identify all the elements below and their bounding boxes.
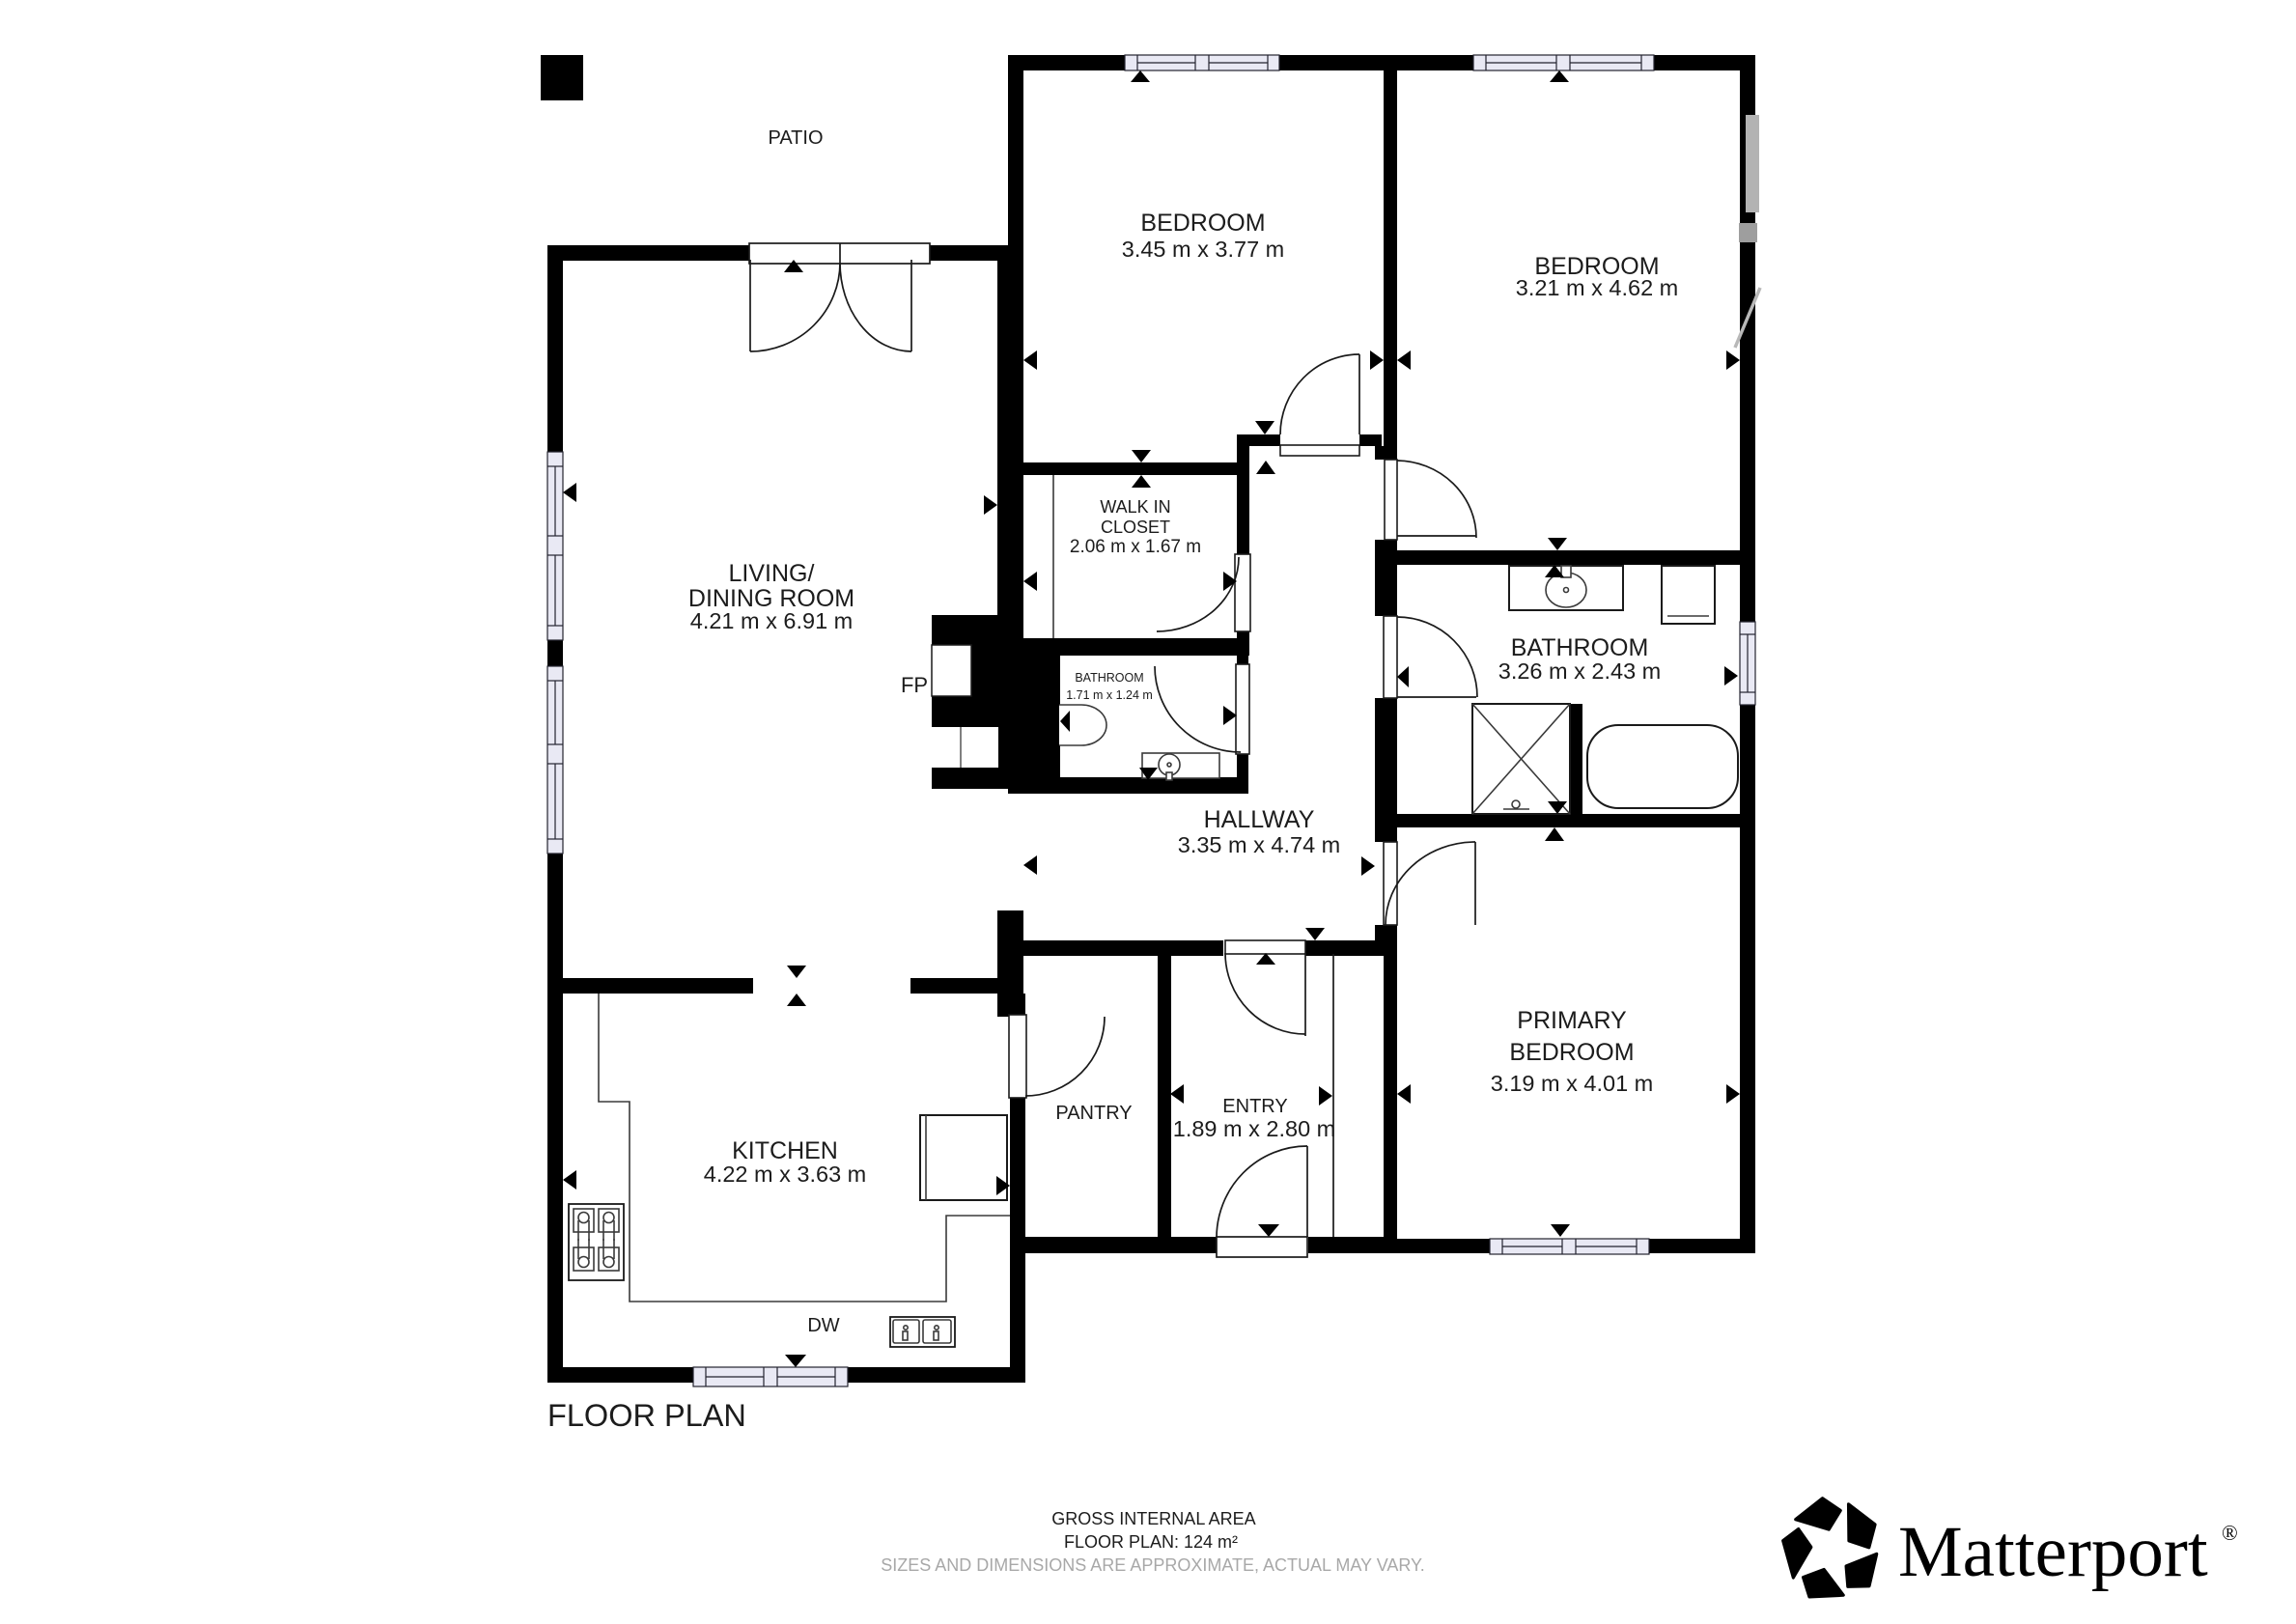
- svg-text:BEDROOM: BEDROOM: [1140, 210, 1265, 237]
- svg-text:1.89 m x 2.80 m: 1.89 m x 2.80 m: [1173, 1116, 1336, 1141]
- svg-text:4.22 m x 3.63 m: 4.22 m x 3.63 m: [704, 1162, 867, 1187]
- svg-text:ENTRY: ENTRY: [1222, 1096, 1287, 1117]
- svg-text:4.21 m x 6.91 m: 4.21 m x 6.91 m: [690, 608, 854, 633]
- svg-text:DW: DW: [807, 1315, 839, 1336]
- svg-text:FLOOR PLAN: FLOOR PLAN: [547, 1398, 746, 1433]
- svg-text:HALLWAY: HALLWAY: [1204, 806, 1315, 833]
- svg-text:3.26 m x 2.43 m: 3.26 m x 2.43 m: [1498, 658, 1662, 684]
- svg-text:PANTRY: PANTRY: [1055, 1103, 1132, 1124]
- svg-text:BATHROOM: BATHROOM: [1075, 671, 1143, 685]
- svg-text:2.06 m x 1.67 m: 2.06 m x 1.67 m: [1070, 537, 1201, 557]
- svg-text:3.21 m x 4.62 m: 3.21 m x 4.62 m: [1516, 275, 1679, 300]
- svg-text:BATHROOM: BATHROOM: [1511, 634, 1649, 661]
- svg-text:3.19 m x 4.01 m: 3.19 m x 4.01 m: [1491, 1071, 1654, 1096]
- svg-text:1.71 m x 1.24 m: 1.71 m x 1.24 m: [1066, 688, 1153, 702]
- svg-text:3.45 m x 3.77 m: 3.45 m x 3.77 m: [1122, 237, 1285, 262]
- svg-text:Matterport: Matterport: [1898, 1512, 2208, 1592]
- svg-text:GROSS INTERNAL AREA: GROSS INTERNAL AREA: [1051, 1509, 1255, 1528]
- svg-text:PRIMARY: PRIMARY: [1517, 1007, 1627, 1034]
- svg-text:LIVING/: LIVING/: [729, 560, 815, 587]
- svg-text:WALK IN: WALK IN: [1100, 497, 1170, 517]
- svg-text:CLOSET: CLOSET: [1101, 518, 1170, 537]
- svg-text:PATIO: PATIO: [768, 127, 823, 149]
- svg-text:3.35 m x 4.74 m: 3.35 m x 4.74 m: [1178, 832, 1341, 857]
- svg-text:FLOOR PLAN: 124 m²: FLOOR PLAN: 124 m²: [1064, 1532, 1238, 1552]
- svg-text:KITCHEN: KITCHEN: [732, 1137, 838, 1164]
- svg-text:BEDROOM: BEDROOM: [1509, 1039, 1634, 1066]
- svg-text:®: ®: [2222, 1521, 2238, 1545]
- svg-text:SIZES AND DIMENSIONS ARE APPRO: SIZES AND DIMENSIONS ARE APPROXIMATE, AC…: [881, 1555, 1425, 1575]
- svg-text:FP: FP: [901, 673, 928, 697]
